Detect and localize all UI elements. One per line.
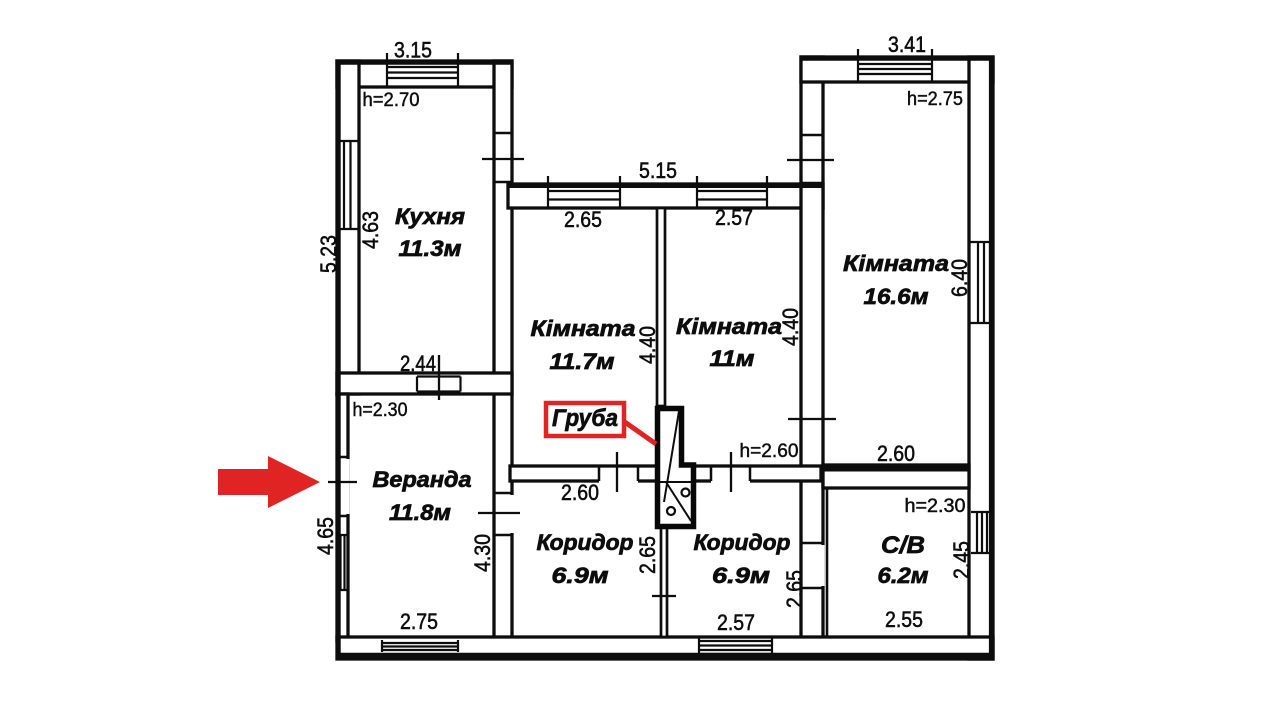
svg-text:4.40: 4.40 bbox=[635, 326, 660, 364]
svg-text:4.63: 4.63 bbox=[358, 211, 383, 249]
svg-text:2.44: 2.44 bbox=[400, 351, 436, 376]
svg-text:6.9м: 6.9м bbox=[552, 563, 609, 588]
svg-text:4.65: 4.65 bbox=[313, 517, 338, 555]
svg-text:5.23: 5.23 bbox=[316, 235, 341, 273]
svg-text:h=2.30: h=2.30 bbox=[353, 400, 408, 421]
svg-text:h=2.70: h=2.70 bbox=[363, 90, 420, 111]
svg-text:h=2.30: h=2.30 bbox=[905, 496, 966, 517]
svg-text:Коридор: Коридор bbox=[694, 530, 791, 555]
svg-text:3.15: 3.15 bbox=[394, 38, 432, 63]
svg-text:5.15: 5.15 bbox=[639, 158, 677, 183]
svg-text:С/В: С/В bbox=[881, 532, 925, 559]
svg-text:2.60: 2.60 bbox=[877, 441, 915, 466]
svg-text:h=2.60: h=2.60 bbox=[740, 441, 799, 462]
svg-text:2.75: 2.75 bbox=[400, 609, 438, 634]
svg-text:Кімната: Кімната bbox=[676, 314, 782, 339]
svg-text:11.8м: 11.8м bbox=[389, 500, 451, 525]
svg-text:2.45: 2.45 bbox=[949, 541, 974, 579]
svg-text:3.41: 3.41 bbox=[888, 32, 926, 57]
svg-text:h=2.75: h=2.75 bbox=[907, 89, 963, 110]
svg-text:Коридор: Коридор bbox=[537, 530, 634, 555]
svg-text:Веранда: Веранда bbox=[373, 467, 472, 492]
svg-text:6.2м: 6.2м bbox=[878, 563, 929, 588]
svg-text:4.30: 4.30 bbox=[470, 534, 495, 572]
svg-text:2.55: 2.55 bbox=[885, 607, 923, 632]
svg-text:Кімната: Кімната bbox=[531, 316, 636, 341]
svg-text:2.60: 2.60 bbox=[561, 480, 599, 505]
svg-text:6.9м: 6.9м bbox=[712, 563, 770, 588]
svg-text:Груба: Груба bbox=[552, 405, 618, 432]
svg-text:16.6м: 16.6м bbox=[864, 284, 929, 309]
svg-text:Кухня: Кухня bbox=[395, 204, 465, 229]
svg-text:Кімната: Кімната bbox=[843, 251, 949, 276]
svg-text:2.65: 2.65 bbox=[782, 570, 807, 608]
svg-text:11м: 11м bbox=[710, 346, 755, 371]
svg-text:11.3м: 11.3м bbox=[399, 236, 462, 261]
svg-text:2.65: 2.65 bbox=[635, 536, 660, 574]
svg-text:11.7м: 11.7м bbox=[550, 349, 615, 374]
svg-text:4.40: 4.40 bbox=[778, 308, 803, 346]
svg-text:2.65: 2.65 bbox=[564, 207, 602, 232]
svg-text:6.40: 6.40 bbox=[947, 259, 972, 297]
svg-text:2.57: 2.57 bbox=[717, 610, 755, 635]
svg-text:2.57: 2.57 bbox=[715, 205, 753, 230]
